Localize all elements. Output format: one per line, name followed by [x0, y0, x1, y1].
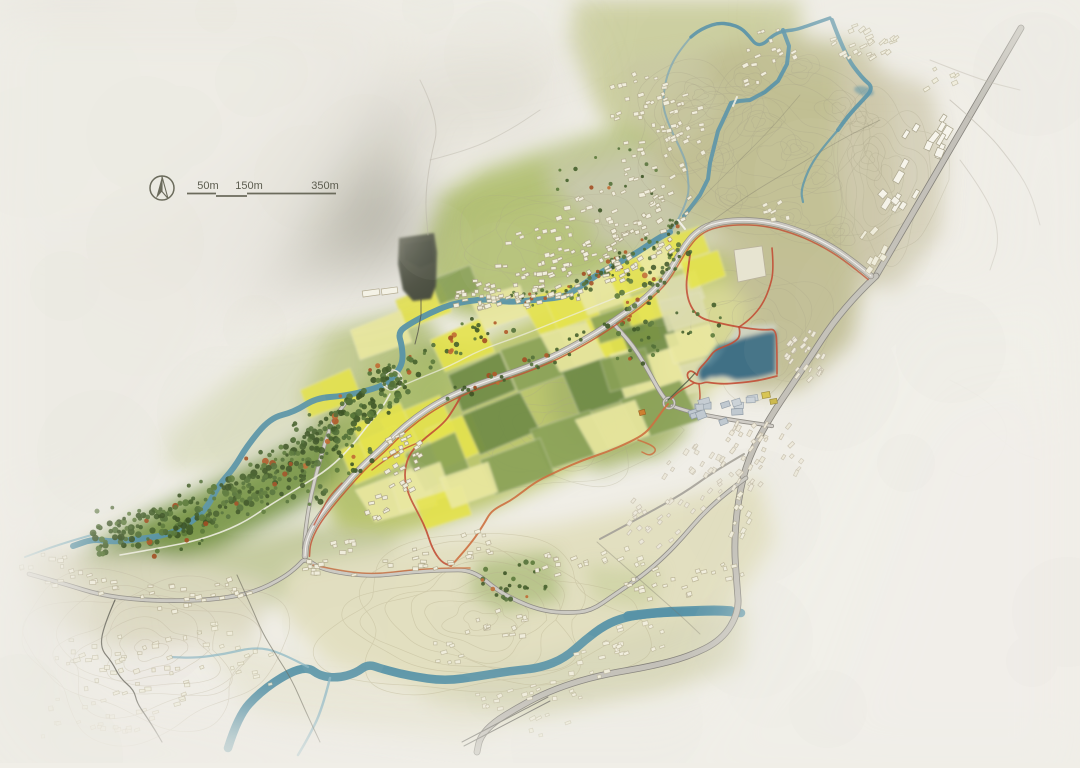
svg-text:150m: 150m — [235, 180, 263, 192]
svg-text:350m: 350m — [311, 180, 339, 192]
svg-text:50m: 50m — [197, 180, 218, 192]
